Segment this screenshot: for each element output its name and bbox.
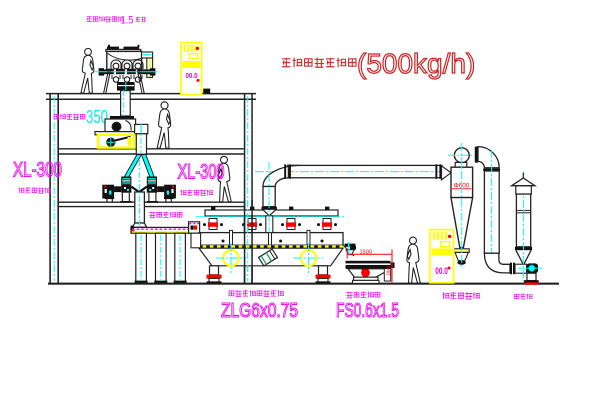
svg-text:XL-300: XL-300 xyxy=(13,159,62,182)
svg-text:(500kg/h): (500kg/h) xyxy=(357,48,475,79)
svg-text:XL-300: XL-300 xyxy=(178,161,225,184)
svg-text:1.5: 1.5 xyxy=(121,15,134,27)
svg-text:1500: 1500 xyxy=(360,250,372,256)
svg-text:00.0: 00.0 xyxy=(435,266,448,276)
svg-text:540: 540 xyxy=(385,266,391,275)
svg-text:FS0.6x1.5: FS0.6x1.5 xyxy=(336,300,399,322)
svg-text:00.0: 00.0 xyxy=(186,71,198,80)
svg-text:ZLG6x0.75: ZLG6x0.75 xyxy=(221,300,298,322)
